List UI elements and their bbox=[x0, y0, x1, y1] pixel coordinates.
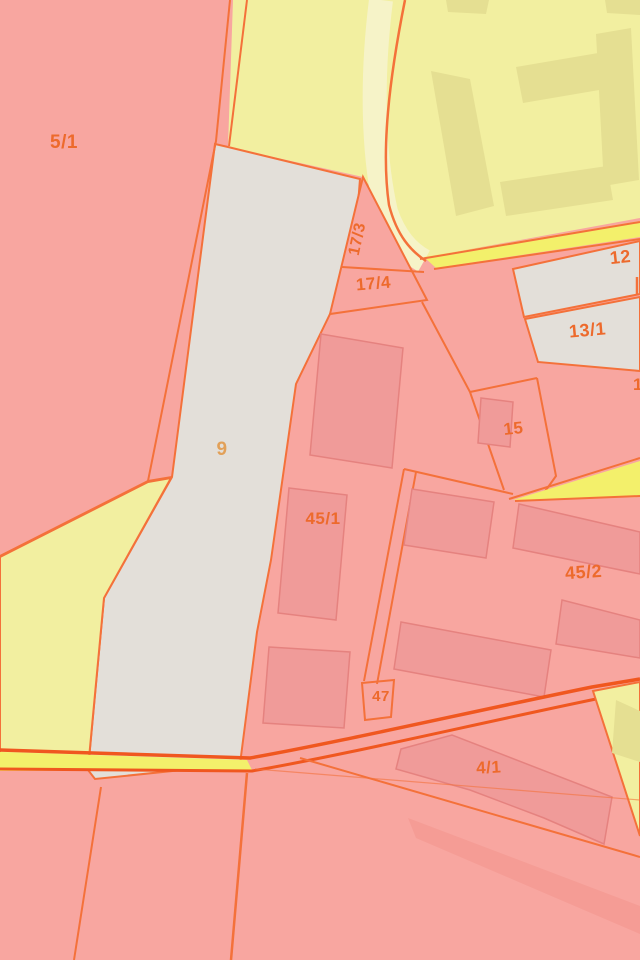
parcel-label-4-1: 4/1 bbox=[476, 757, 502, 777]
building-footprint bbox=[446, 0, 489, 14]
building-footprint bbox=[605, 0, 640, 15]
building-footprint bbox=[263, 647, 350, 728]
parcel-label-9: 9 bbox=[216, 439, 227, 460]
parcel-label-15: 15 bbox=[503, 418, 525, 439]
parcel-label-45-1: 45/1 bbox=[305, 509, 340, 528]
parcel-label-edge-partial: 1 bbox=[633, 375, 640, 394]
parcel-label-45-2: 45/2 bbox=[564, 561, 602, 584]
parcel-label-13-1: 13/1 bbox=[568, 318, 607, 341]
parcel-label-5-1: 5/1 bbox=[50, 132, 78, 153]
map-viewport[interactable]: 5/1 17/3 17/4 12 13/1 15 9 45/1 45/2 47 … bbox=[0, 0, 640, 960]
parcel-label-17-4: 17/4 bbox=[355, 273, 392, 295]
parcel-label-47: 47 bbox=[372, 688, 390, 705]
parcel-label-12: 12 bbox=[609, 246, 632, 268]
map-canvas[interactable]: 5/1 17/3 17/4 12 13/1 15 9 45/1 45/2 47 … bbox=[0, 0, 640, 960]
